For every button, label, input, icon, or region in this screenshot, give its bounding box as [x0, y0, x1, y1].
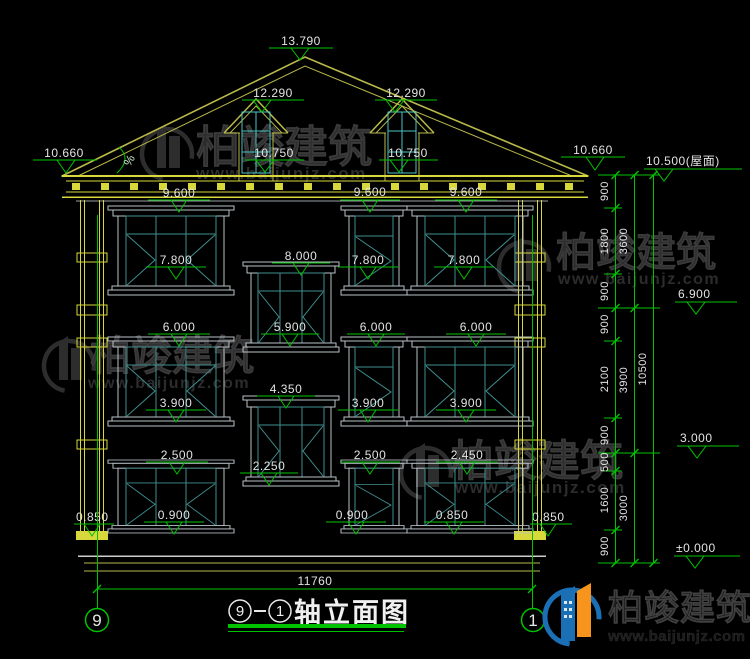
level-value: 7.800: [352, 253, 385, 267]
level-value: 0.850: [532, 510, 565, 524]
lvl-f2-mid-sill: 3.900: [338, 396, 398, 422]
level-value: 3.900: [352, 396, 385, 410]
ground-lines: [78, 556, 546, 571]
elevation-drawing-canvas: 柏竣建筑 www.baijunjz.com 柏竣建筑 www.baijunjz.…: [0, 0, 750, 659]
level-value: 9.600: [354, 185, 387, 199]
drawing-title: 9 1 轴立面图: [228, 597, 410, 632]
level-value: 6.000: [163, 320, 196, 334]
level-value: 5.900: [274, 320, 307, 334]
window-f3-mid: [341, 206, 407, 295]
level-marker-ridge: 13.790: [269, 34, 333, 60]
level-value: 0.900: [158, 508, 191, 522]
brand-logo-icon: [543, 583, 602, 646]
dim-value: 3900: [618, 367, 630, 393]
dim-value: 900: [599, 425, 611, 445]
title-axis-start: 9: [236, 603, 244, 620]
axis-bubble-left: 9: [86, 609, 109, 632]
lvl-f1-right-sill: 0.850: [424, 508, 484, 534]
level-value: 10.750: [254, 146, 294, 160]
dim-value: 900: [599, 536, 611, 556]
axis-number: 9: [92, 611, 101, 630]
level-marker-eave-left: 10.660: [33, 146, 97, 173]
level-value: 2.250: [253, 459, 286, 473]
cad-viewport: 柏竣建筑 www.baijunjz.com 柏竣建筑 www.baijunjz.…: [0, 0, 750, 659]
lvl-f1-left-sill: 0.900: [144, 508, 204, 534]
lvl-f2-right-head: 6.000: [446, 320, 506, 346]
watermark-logo-icon: [495, 237, 553, 296]
level-value: ±0.000: [676, 541, 716, 555]
level-value: 10.500(屋面): [646, 154, 720, 168]
dim-value: 1600: [599, 487, 611, 513]
level-marker-eave-right: 10.660: [561, 143, 625, 170]
lvl-f3-left-head: 9.600: [148, 186, 210, 212]
level-value: 9.600: [163, 186, 196, 200]
watermark-logo-icon: [397, 443, 455, 502]
lvl-stair-lower-head: 4.350: [257, 382, 315, 408]
dim-value: 3600: [618, 228, 630, 254]
level-value: 6.000: [460, 320, 493, 334]
brand-url: www.baijunjz.com: [607, 628, 745, 645]
level-value: 9.600: [450, 185, 483, 199]
roof-slope-symbol: %: [117, 147, 138, 173]
title-underline-thick: [228, 624, 406, 628]
level-value: 0.900: [336, 508, 369, 522]
dim-value: 500: [599, 452, 611, 472]
watermark-brand: 柏竣建筑: [90, 333, 254, 379]
dormer-right-window: [388, 112, 416, 173]
dim-value: 1800: [599, 228, 611, 254]
watermark-left: 柏竣建筑 www.baijunjz.com: [40, 333, 254, 395]
overall-width-value: 11760: [298, 574, 333, 588]
dentil-row: [72, 183, 573, 190]
title-text: 轴立面图: [294, 597, 410, 628]
window-f2-right: [407, 337, 533, 426]
level-value: 12.290: [253, 86, 293, 100]
window-f3-left: [108, 206, 234, 295]
lvl-f1-left-head: 2.500: [146, 448, 208, 474]
level-marker-floor2: 3.000: [677, 431, 739, 458]
lvl-f3-left-sill: 7.800: [146, 253, 206, 279]
lvl-stair-upper-sill: 5.900: [261, 320, 319, 346]
title-axis-end: 1: [276, 603, 284, 620]
watermark-center: 柏竣建筑 www.baijunjz.com: [397, 438, 626, 502]
level-marker-dormer-left: 12.290: [242, 86, 304, 112]
watermark-url: www.baijunjz.com: [87, 375, 250, 392]
level-value: 3.900: [160, 396, 193, 410]
level-value: 2.500: [161, 448, 194, 462]
watermark-url: www.baijunjz.com: [557, 271, 720, 288]
watermark-url: www.baijunjz.com: [195, 164, 367, 183]
level-value: 4.350: [270, 382, 303, 396]
level-marker-ground: ±0.000: [674, 541, 740, 568]
lvl-f3-right-head: 9.600: [435, 185, 497, 212]
level-value: 0.850: [436, 508, 469, 522]
brand-logo: 柏竣建筑 www.baijunjz.com: [543, 583, 750, 646]
level-value: 6.000: [360, 320, 393, 334]
dim-value: 2100: [599, 366, 611, 392]
lvl-f3-mid-sill: 7.800: [338, 253, 398, 279]
lvl-f1-mid-sill: 0.900: [326, 508, 386, 534]
level-value: 8.000: [285, 249, 318, 263]
level-value: 3.900: [450, 396, 483, 410]
level-value: 12.290: [386, 86, 426, 100]
lvl-f2-right-sill: 3.900: [436, 396, 496, 422]
level-value: 10.750: [388, 146, 428, 160]
level-value: 7.800: [448, 253, 481, 267]
level-marker-floor3: 6.900: [675, 287, 737, 314]
axis-bubble-right: 1: [522, 609, 545, 632]
window-stair-upper: [243, 262, 339, 352]
bottom-dimension: 11760: [93, 215, 536, 608]
level-value: 13.790: [281, 34, 321, 48]
level-value: 6.900: [678, 287, 711, 301]
level-marker-roof-right: 10.500(屋面): [644, 154, 742, 181]
dim-value: 10500: [637, 352, 649, 385]
axis-number: 1: [528, 611, 537, 630]
dim-value: 900: [599, 181, 611, 201]
brand-name: 柏竣建筑: [608, 588, 750, 628]
lvl-f2-mid-head: 6.000: [347, 320, 405, 346]
dim-value: 3000: [618, 495, 630, 521]
level-value: 2.500: [354, 448, 387, 462]
watermark-brand: 柏竣建筑: [556, 231, 716, 275]
dim-value: 900: [599, 314, 611, 334]
level-value: 10.660: [44, 146, 84, 160]
level-value: 0.850: [76, 510, 109, 524]
level-value: 10.660: [573, 143, 613, 157]
dim-value: 900: [599, 281, 611, 301]
level-value: 2.450: [451, 448, 484, 462]
level-value: 3.000: [680, 431, 713, 445]
level-value: 7.800: [160, 253, 193, 267]
